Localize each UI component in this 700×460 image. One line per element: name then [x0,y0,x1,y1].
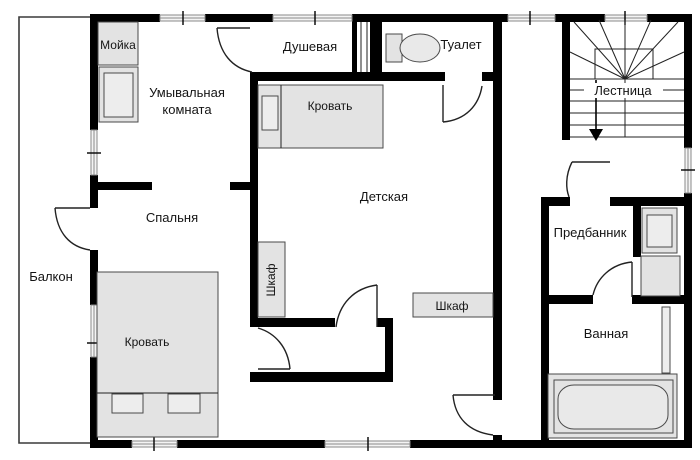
window-top-shower [273,11,352,25]
door-nursery-corridor [453,395,495,435]
wall-bedroom-nursery [250,72,258,327]
window-right-landing [681,148,695,193]
window-top-washroom [160,11,205,25]
wall-shower-partition-left [352,22,357,72]
wall-hall-top-left [258,318,335,327]
bathroom-label: Ванная [584,326,629,341]
anteroom-unit-bottom [641,256,680,296]
stairs: Лестница [570,20,684,141]
wall-anteroom-niche [633,197,641,257]
wall-hall-right [385,327,393,377]
floor-plan: Лестница Умывальная комната Душевая Туал… [0,0,700,460]
wall-left-2 [90,175,98,208]
door-hall-nursery [336,285,377,327]
anteroom-label: Предбанник [554,225,627,240]
stairs-label: Лестница [594,83,652,98]
wall-right-2 [684,193,692,448]
wall-top-2 [205,14,273,22]
door-balcony [55,208,90,250]
window-top-landing [508,11,555,25]
washroom-label-line2: комната [162,102,212,117]
nursery-label: Детская [360,189,408,204]
wall-stairs-left [562,14,570,140]
washer-inner [104,73,133,117]
stair-winder-box [595,49,653,79]
toilet-label: Туалет [440,37,481,52]
window-bottom-bedroom [132,437,177,451]
door-bedroom-hall [258,328,290,369]
bedroom-bed-pillow-2 [168,394,200,413]
wall-bathroom-top-left [549,295,593,304]
nursery-bed-pillow [262,96,278,130]
wall-washroom-left [98,182,152,190]
sink-label: Мойка [100,38,136,52]
nursery-bed-label: Кровать [308,99,353,113]
wall-washroom-right [230,182,258,190]
wall-left-1 [90,14,98,130]
stair-arrow-head [589,129,603,141]
window-left-washroom [87,130,101,175]
window-top-stairs [605,11,647,25]
wall-hall-bottom [250,372,393,382]
wall-nursery-right-stub [493,435,502,448]
bathtub-tub [558,385,668,429]
door-landing-anteroom [567,162,610,197]
wall-top-3 [352,14,508,22]
wall-bottom-2 [177,440,325,448]
bathroom-duct [662,307,670,373]
window-bottom-hall [325,437,410,451]
wall-hall-top-right [377,318,393,327]
shower-label: Душевая [283,39,337,54]
wall-anteroom-top-left [549,197,570,206]
closet-left-label: Шкаф [264,263,278,296]
closet-bottom-label: Шкаф [435,299,468,313]
anteroom-unit-top-inner [647,215,672,247]
wall-right-1 [684,14,692,148]
wall-nursery-right [493,22,502,400]
door-toilet [443,85,482,122]
toilet-bowl [400,34,440,62]
wall-bottom-3 [410,440,692,448]
wall-anteroom-top-right [610,197,684,206]
bedroom-bed-label: Кровать [125,335,170,349]
door-washroom-shower [217,28,252,72]
bedroom-bed-pillow-1 [112,394,143,413]
washroom-label-line1: Умывальная [149,85,225,100]
wall-shower-bottom [250,72,445,81]
wall-shower-partition-right [370,22,382,81]
floor-plan-page: Лестница Умывальная комната Душевая Туал… [0,0,700,460]
bedroom-label: Спальня [146,210,198,225]
door-anteroom-bathroom [593,262,632,297]
wall-top-1 [90,14,160,22]
balcony-outline [19,17,90,443]
balcony-label: Балкон [29,269,73,284]
